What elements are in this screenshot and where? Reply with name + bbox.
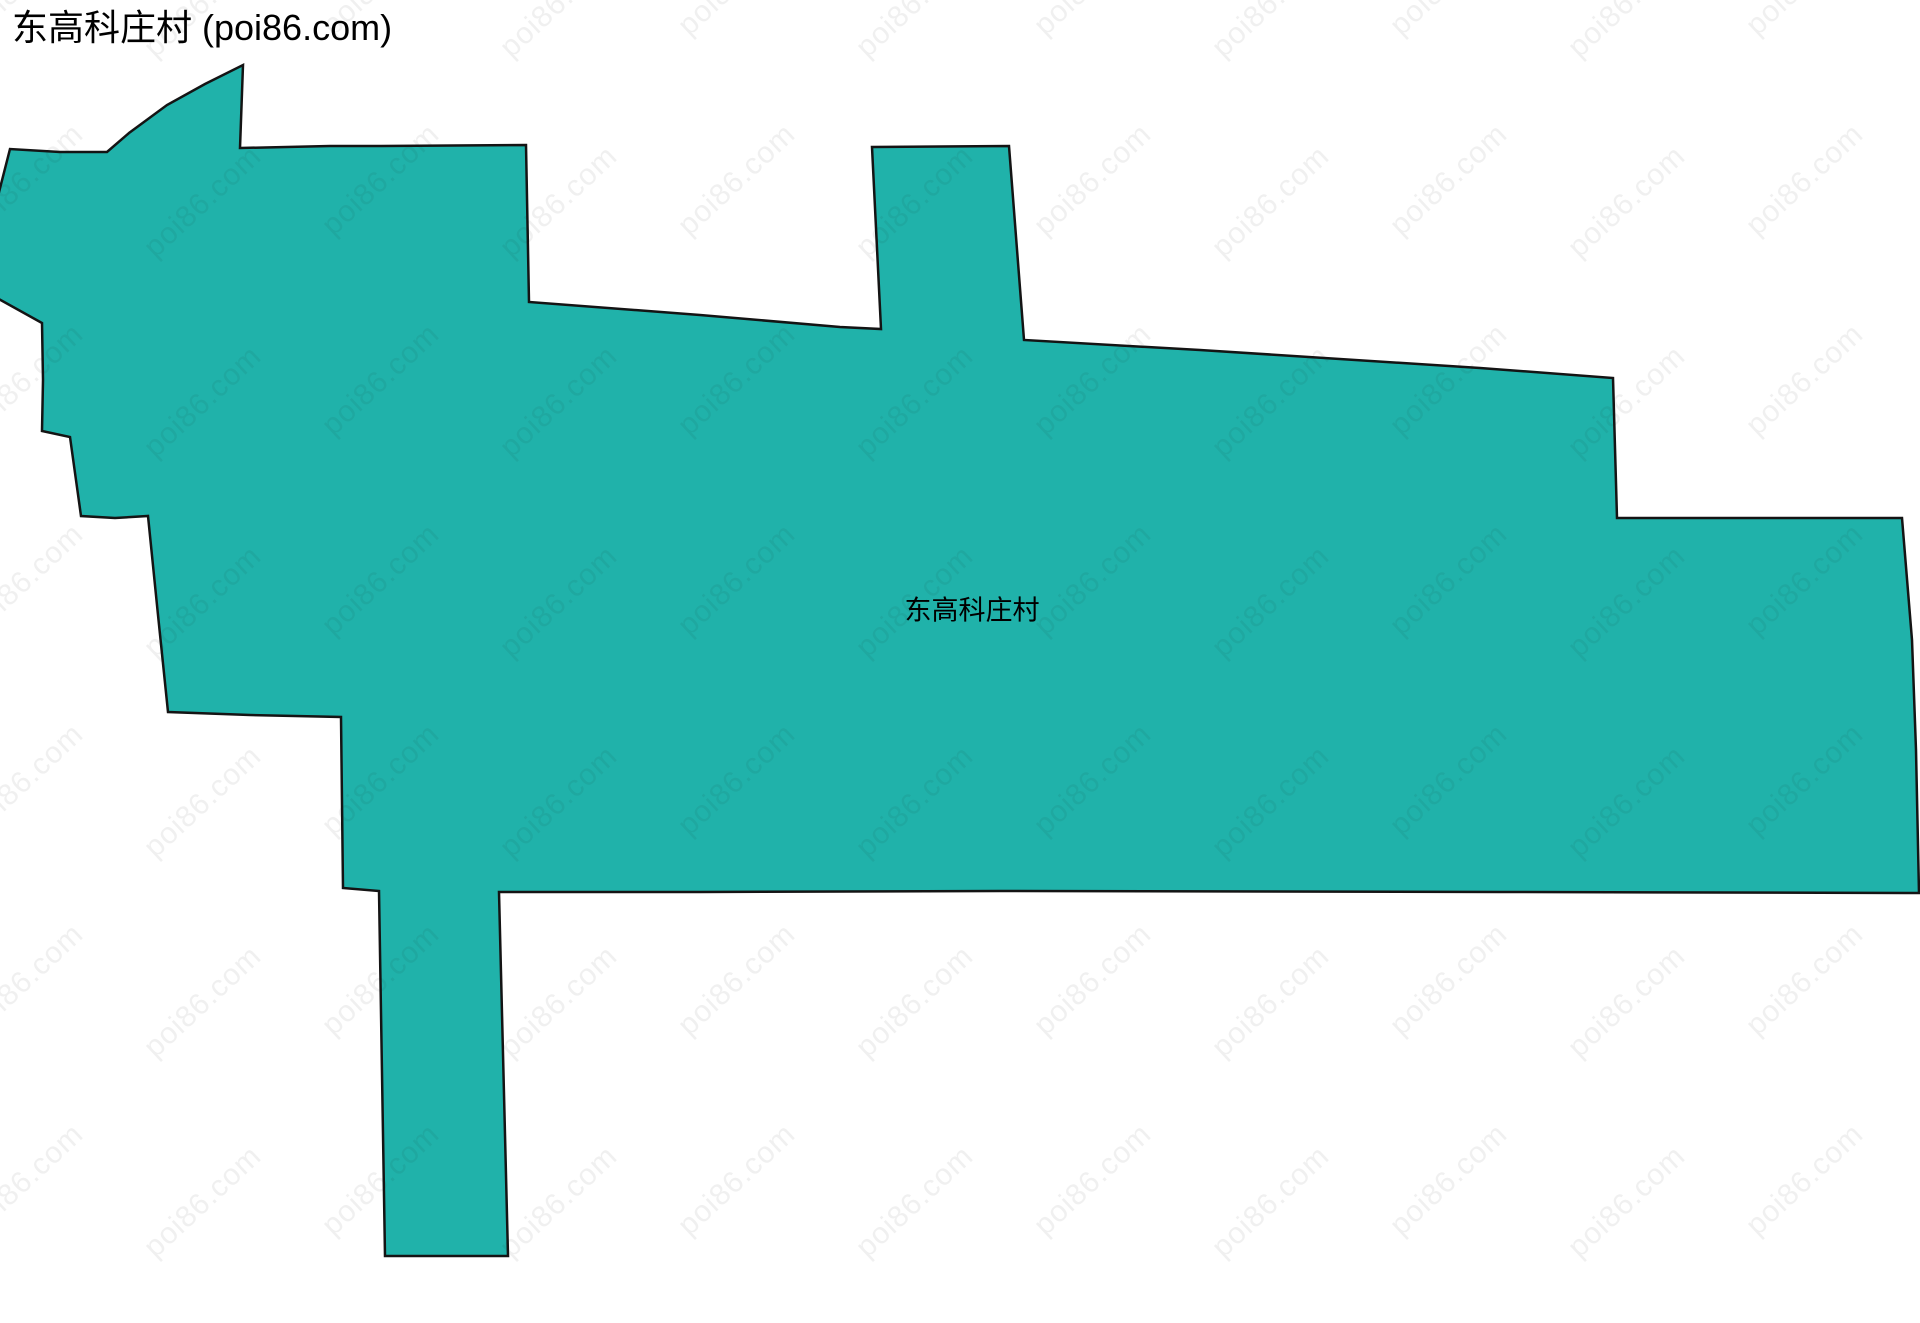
- village-boundary-polygon: [0, 65, 1919, 1256]
- boundary-map-svg: [0, 0, 1920, 1323]
- map-canvas: poi86.compoi86.compoi86.compoi86.compoi8…: [0, 0, 1920, 1323]
- village-label: 东高科庄村: [905, 589, 1040, 628]
- page-title: 东高科庄村 (poi86.com): [12, 6, 392, 49]
